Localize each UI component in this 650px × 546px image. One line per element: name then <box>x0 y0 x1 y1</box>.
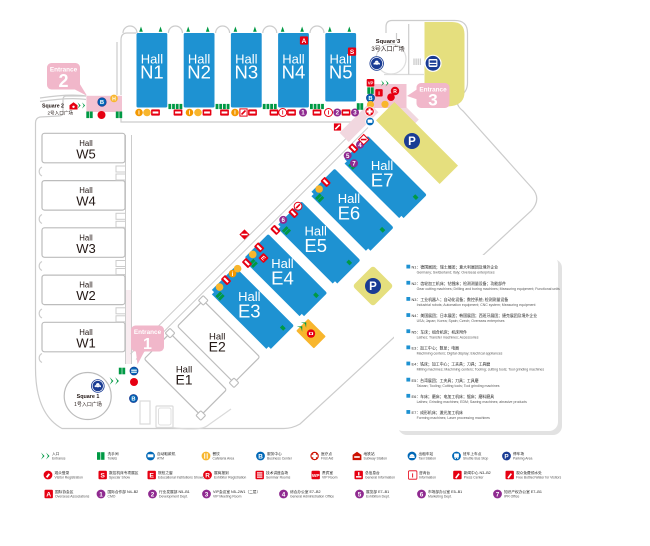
svg-text:S: S <box>350 49 355 56</box>
svg-text:Industrial robots; Automation: Industrial robots; Automation equipment;… <box>417 303 536 307</box>
svg-text:VP: VP <box>368 80 374 85</box>
svg-text:First Aid: First Aid <box>321 456 333 460</box>
svg-text:Toilets: Toilets <box>108 456 118 460</box>
svg-text:E2: E2 <box>209 339 226 355</box>
svg-text:3号入口广场: 3号入口广场 <box>371 45 404 53</box>
svg-text:E5: E5 <box>304 235 327 256</box>
svg-text:Lathes; Grinding machines; EDM: Lathes; Grinding machines; EDM; Sawing m… <box>417 400 528 404</box>
svg-text:N5：车床；组合机床；机床附件: N5：车床；组合机床；机床附件 <box>412 329 468 334</box>
svg-text:B: B <box>131 397 135 403</box>
svg-text:Germany; Switzerland; Italy; O: Germany; Switzerland; Italy; Overseas en… <box>417 271 495 275</box>
svg-text:Exhibitor Registration: Exhibitor Registration <box>214 475 246 479</box>
svg-text:Visitor Registration: Visitor Registration <box>55 475 84 479</box>
svg-text:4: 4 <box>282 491 286 498</box>
svg-text:USA; Japan; Korea; Spain; Czec: USA; Japan; Korea; Spain; Czech; Oversea… <box>417 319 505 323</box>
svg-text:W5: W5 <box>76 146 96 161</box>
svg-text:Educational Institutions Showc: Educational Institutions Showcase <box>158 475 210 479</box>
svg-text:E5：台湾展团；工夹具；刀具；工具磨: E5：台湾展团；工夹具；刀具；工具磨 <box>412 378 479 383</box>
svg-text:Forming machines; Laser proces: Forming machines; Laser processing machi… <box>417 416 491 420</box>
svg-text:E6：车床；磨床；电加工机床；锯床；磨料磨具: E6：车床；磨床；电加工机床；锯床；磨料磨具 <box>412 394 495 399</box>
svg-text:N4：美国展团；日本展团；韩国展团；西班牙展团；捷克展团及境: N4：美国展团；日本展团；韩国展团；西班牙展团；捷克展团及境外企业 <box>412 313 538 318</box>
svg-text:Speciar Show: Speciar Show <box>109 475 130 479</box>
svg-text:A: A <box>46 491 51 498</box>
svg-text:1号入口广场: 1号入口广场 <box>74 401 102 408</box>
svg-text:1: 1 <box>301 110 305 117</box>
svg-text:2: 2 <box>336 110 340 117</box>
svg-text:Entrance: Entrance <box>52 456 66 460</box>
svg-text:Free Bottled Water for Visitor: Free Bottled Water for Visitors <box>516 475 562 479</box>
svg-text:S: S <box>100 472 105 479</box>
svg-text:7: 7 <box>496 491 500 498</box>
svg-text:Press Center: Press Center <box>464 475 485 479</box>
svg-text:Business Center: Business Center <box>267 456 293 460</box>
svg-text:Machining centers; Digital dis: Machining centers; Digital display; Elec… <box>417 351 503 355</box>
svg-text:P: P <box>408 136 416 148</box>
svg-text:W4: W4 <box>76 194 96 209</box>
svg-text:H: H <box>112 97 116 103</box>
svg-text:3: 3 <box>353 110 357 117</box>
svg-text:i: i <box>412 472 414 479</box>
svg-text:1: 1 <box>143 336 152 353</box>
svg-text:N2: N2 <box>187 62 211 83</box>
svg-text:W3: W3 <box>76 241 96 256</box>
svg-text:N5: N5 <box>329 62 353 83</box>
svg-text:A: A <box>302 38 307 45</box>
svg-text:E7：成形机床；激光加工机床: E7：成形机床；激光加工机床 <box>412 410 464 415</box>
svg-text:1: 1 <box>99 491 103 498</box>
svg-text:7: 7 <box>352 161 356 168</box>
svg-text:Milling machines; Machining ce: Milling machines; Machining centers; Too… <box>417 368 545 372</box>
svg-text:N1：德国展团；瑞士展团；意大利展团及境外企业: N1：德国展团；瑞士展团；意大利展团及境外企业 <box>412 265 499 270</box>
svg-text:P: P <box>504 453 509 460</box>
svg-text:3: 3 <box>205 491 209 498</box>
svg-text:Entrance: Entrance <box>134 329 162 336</box>
svg-text:CMO: CMO <box>108 494 116 498</box>
svg-text:Taiwan; Tooling; Cutting tools: Taiwan; Tooling; Cutting tools; Tool gri… <box>417 384 500 388</box>
svg-text:E7: E7 <box>371 170 394 191</box>
svg-text:Seminar Rooms: Seminar Rooms <box>266 475 291 479</box>
svg-text:Subway Station: Subway Station <box>364 456 388 460</box>
svg-text:P: P <box>369 281 377 293</box>
svg-text:Square 1: Square 1 <box>77 394 100 400</box>
svg-text:6: 6 <box>282 217 286 224</box>
svg-text:N3：工业机器人；自动化设备；数控系统; 检测测量设备: N3：工业机器人；自动化设备；数控系统; 检测测量设备 <box>412 297 509 302</box>
svg-text:5: 5 <box>346 153 350 160</box>
svg-text:W1: W1 <box>76 335 96 350</box>
svg-text:Exhibition Dept.: Exhibition Dept. <box>366 494 390 498</box>
svg-text:E4: E4 <box>271 268 294 289</box>
svg-text:6: 6 <box>420 491 424 498</box>
svg-text:Square 3: Square 3 <box>376 39 401 45</box>
svg-text:VIP Meeting Room: VIP Meeting Room <box>213 494 242 498</box>
svg-text:IPR Office: IPR Office <box>504 494 520 498</box>
svg-text:Parking Area: Parking Area <box>513 456 533 460</box>
svg-text:N4: N4 <box>282 62 306 83</box>
svg-text:General Administration Office: General Administration Office <box>290 494 334 498</box>
svg-text:5: 5 <box>358 491 362 498</box>
svg-text:WP: WP <box>312 473 321 479</box>
svg-text:E3：加工中心；数显；电器: E3：加工中心；数显；电器 <box>412 345 460 350</box>
svg-text:2: 2 <box>151 491 155 498</box>
svg-text:R: R <box>205 472 210 479</box>
svg-text:Development Dept.: Development Dept. <box>159 494 188 498</box>
svg-text:2号入口广场: 2号入口广场 <box>48 110 74 117</box>
svg-text:Cafeteria Area: Cafeteria Area <box>213 456 235 460</box>
svg-text:Shuttle Bus Stop: Shuttle Bus Stop <box>463 456 488 460</box>
svg-text:Overseas Associations: Overseas Associations <box>55 494 90 498</box>
svg-text:Taxi Station: Taxi Station <box>419 456 437 460</box>
svg-text:Square 2: Square 2 <box>42 104 64 110</box>
svg-text:Information: Information <box>419 475 436 479</box>
svg-text:3: 3 <box>428 91 437 110</box>
svg-text:Marketing Dept.: Marketing Dept. <box>428 494 452 498</box>
svg-text:E6: E6 <box>338 202 361 223</box>
svg-text:General Information: General Information <box>365 475 395 479</box>
svg-text:E1: E1 <box>175 371 192 387</box>
svg-text:N3: N3 <box>234 62 258 83</box>
svg-text:Gear cutting machines; Drillin: Gear cutting machines; Drilling and bori… <box>417 287 560 291</box>
svg-text:W2: W2 <box>76 288 96 303</box>
svg-text:B: B <box>100 100 104 106</box>
svg-text:B: B <box>258 453 263 460</box>
svg-text:2: 2 <box>58 71 68 91</box>
svg-text:VIP Room: VIP Room <box>322 475 338 479</box>
svg-text:R: R <box>393 89 397 95</box>
svg-text:ATM: ATM <box>157 456 164 460</box>
svg-text:N1: N1 <box>140 62 164 83</box>
svg-text:E: E <box>149 472 154 479</box>
svg-text:N2：齿轮加工机床；钻镗床；检测测量设备；功能部件: N2：齿轮加工机床；钻镗床；检测测量设备；功能部件 <box>412 281 507 286</box>
svg-text:E4：铣床；加工中心；工夹具；刀具；工具磨: E4：铣床；加工中心；工夹具；刀具；工具磨 <box>412 362 491 367</box>
svg-text:Lathes; Transfer machines; Acc: Lathes; Transfer machines; Accessories <box>417 335 479 339</box>
svg-text:E3: E3 <box>238 300 261 321</box>
